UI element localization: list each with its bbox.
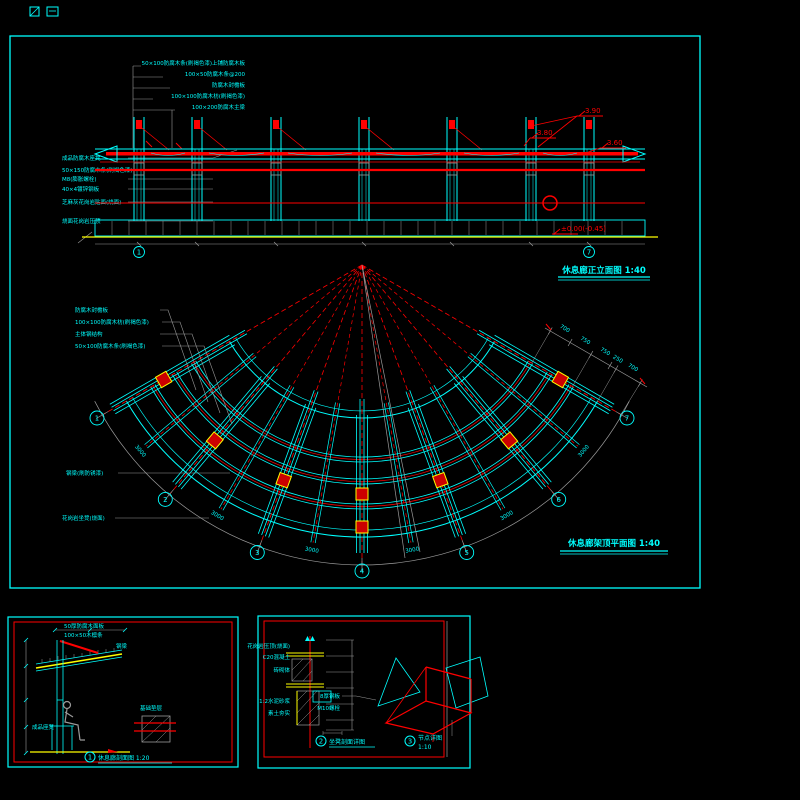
annotation-label: 40×4镀锌钢板 [62, 185, 100, 193]
annotation-label: 8厚钢板 [320, 692, 340, 700]
grid-bubble-label: 2 [163, 496, 167, 504]
grid-bubble-label: 6 [556, 496, 561, 504]
grid-bubble-label: 1 [137, 249, 141, 257]
annotation-label: 50×100防腐木条(刷褐色漆) [75, 342, 145, 350]
elevation-mark: 3.60 [607, 139, 623, 147]
drawing-scale: 1:10 [418, 744, 432, 751]
grid-bubble-label: 7 [625, 415, 629, 423]
drawing-title: 坐凳剖面详图 [329, 738, 365, 746]
annotation-label: 成品座凳 [32, 723, 55, 731]
figure-number: 1 [88, 754, 92, 762]
annotation-label: M8(膨胀螺栓) [62, 175, 97, 183]
annotation-label: 100×50防腐木条@200 [185, 70, 246, 78]
annotation-label: 花岗岩坐凳(烧面) [62, 514, 105, 522]
annotation-label: 100×200防腐木主梁 [192, 103, 246, 111]
grid-bubble-label: 7 [587, 249, 591, 257]
annotation-label: 成品防腐木座凳 [62, 154, 101, 162]
annotation-label: 钢梁(刷防锈漆) [66, 469, 103, 477]
annotation-label: 防腐木封檐板 [75, 306, 109, 314]
annotation-label: 50×100防腐木条(刷褐色漆)上铺防腐木板 [142, 59, 246, 67]
grid-bubble-label: 3 [255, 549, 259, 557]
figure-number: 3 [408, 738, 412, 746]
annotation-label: 花岗岩压顶(烧面) [247, 642, 290, 650]
annotation-label: 50厚防腐木面板 [64, 622, 104, 630]
annotation-label: 钢梁 [116, 642, 128, 650]
annotation-label: 芝麻灰花岗岩贴面(烧面) [62, 198, 121, 206]
drawing-title: 休息廊架顶平面图 1:40 [567, 538, 660, 549]
annotation-label: 100×50木檩条 [64, 631, 103, 639]
page-background [0, 0, 800, 800]
figure-number: 2 [319, 738, 323, 746]
elevation-mark: 3.90 [585, 107, 601, 115]
annotation-label: 基础垫层 [140, 704, 163, 712]
drawing-title: 节点详图 [418, 734, 442, 742]
annotation-label: 防腐木封檐板 [212, 81, 246, 89]
elevation-mark: ±0.00(-0.45) [561, 225, 606, 233]
annotation-label: 主体钢结构 [75, 330, 103, 338]
annotation-label: 100×100防腐木枋(刷褐色漆) [171, 92, 245, 100]
annotation-label: C20混凝土 [263, 653, 291, 661]
grid-bubble-label: 1 [95, 415, 99, 423]
annotation-label: M10螺栓 [317, 704, 340, 712]
grid-bubble-label: 5 [464, 549, 468, 557]
annotation-label: 100×100防腐木枋(刷褐色漆) [75, 318, 149, 326]
cad-canvas: 50×100防腐木条(刷褐色漆)上铺防腐木板 100×50防腐木条@200 防腐… [0, 0, 800, 800]
plan-title: 休息廊架顶平面图 1:40 [560, 538, 668, 554]
drawing-title: 休息廊剖面图 1:20 [98, 754, 150, 762]
annotation-label: 砖砌体 [273, 666, 290, 674]
annotation-label: 1:2水泥砂浆 [259, 697, 290, 705]
annotation-label: 素土夯实 [268, 709, 291, 717]
drawing-title: 休息廊正立面图 1:40 [561, 265, 646, 276]
elevation-mark: 3.80 [537, 129, 553, 137]
grid-bubble-label: 4 [360, 568, 365, 576]
